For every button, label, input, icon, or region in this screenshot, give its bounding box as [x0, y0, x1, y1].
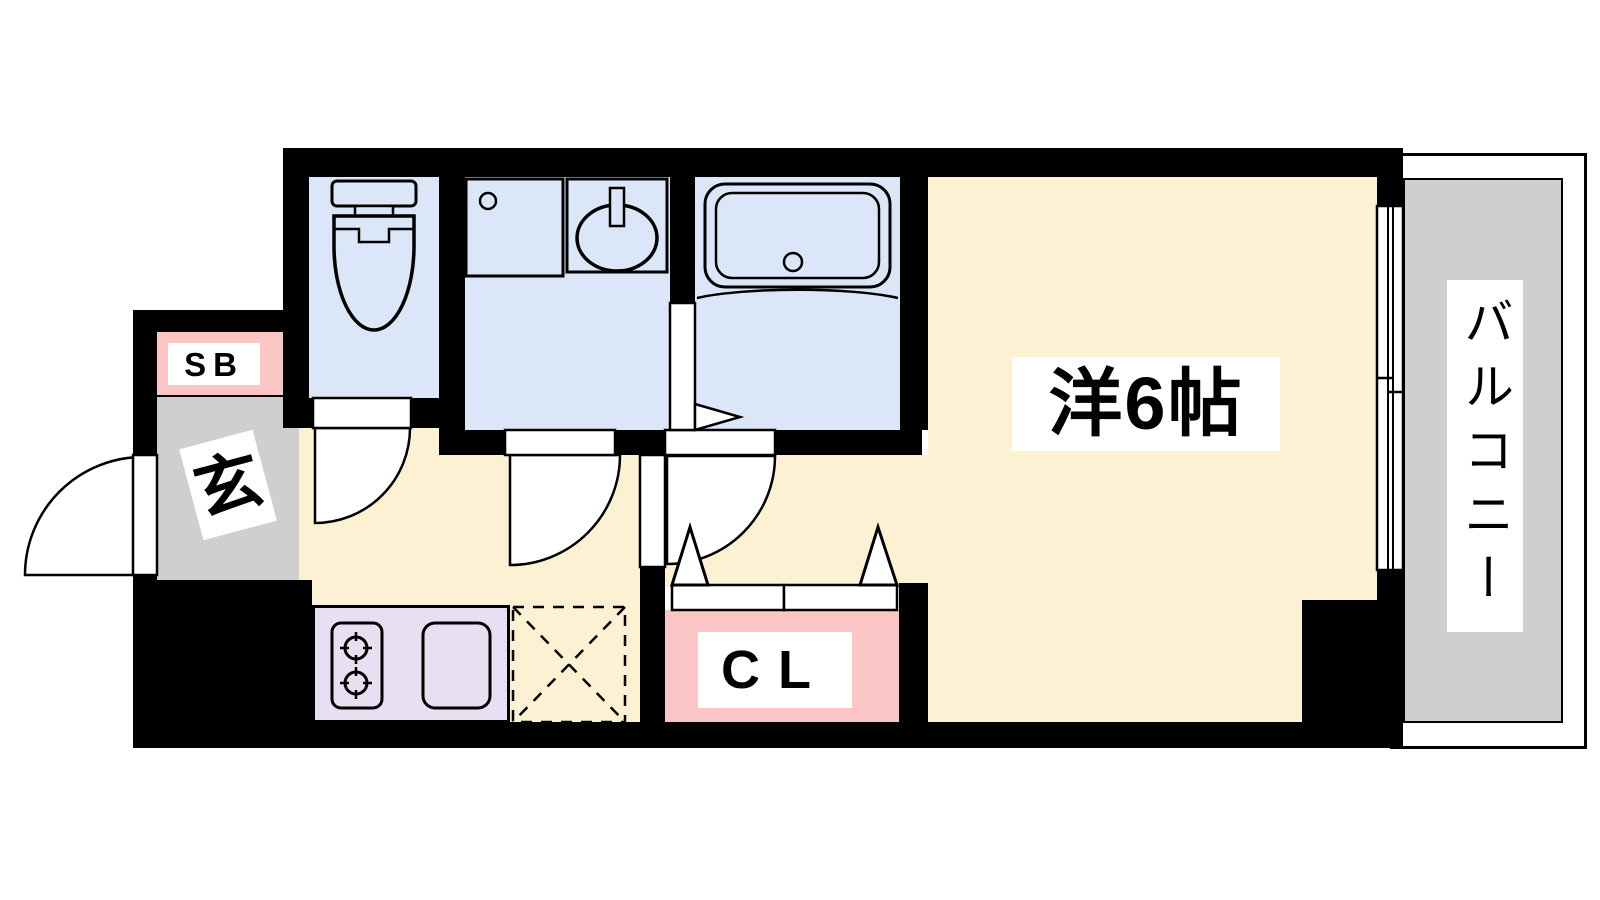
closet-door-right — [784, 585, 897, 610]
wall-entrance-left-lower — [133, 575, 157, 582]
wall-toilet-left — [283, 177, 309, 428]
wall-bottom-left-mass — [133, 580, 312, 722]
wall-entrance-top — [133, 310, 283, 332]
balcony-label: バルコニー — [1447, 280, 1523, 632]
wall-hall-closet — [640, 455, 665, 722]
washroom-floor — [465, 177, 670, 430]
entrance-swing-door-icon — [25, 457, 143, 575]
wall-pillar-bottom-right — [1302, 600, 1403, 722]
entrance-door-leaf — [133, 455, 157, 575]
wall-closet-mainroom — [899, 583, 928, 722]
corridor-floor — [665, 455, 928, 587]
closet-label: CL — [698, 632, 852, 708]
wall-bath-mainroom — [900, 177, 928, 430]
room-doorway-opening — [665, 430, 775, 455]
toilet-room-floor — [309, 177, 439, 398]
bath-doorway-opening — [670, 303, 695, 430]
wall-bath-bottom-right — [775, 430, 922, 455]
wall-toilet-bottom — [283, 398, 465, 428]
wall-top — [283, 148, 1403, 177]
kitchen-counter — [312, 605, 510, 723]
wall-right-below-window — [1377, 570, 1403, 600]
wall-washroom-bath — [670, 177, 695, 303]
wall-washroom-bottom-right — [615, 430, 665, 455]
floor-plan: 洋6帖 バルコニー SB 玄 CL — [0, 0, 1600, 900]
wall-right-upper — [1377, 177, 1403, 206]
wall-washroom-bottom-left — [439, 430, 505, 455]
bathroom-floor — [695, 177, 900, 430]
wall-toilet-washroom — [439, 177, 465, 455]
main-room-label: 洋6帖 — [1012, 357, 1280, 451]
shoe-box-label: SB — [168, 343, 260, 385]
closet-door-left — [672, 585, 784, 610]
wall-bottom — [133, 722, 1403, 748]
